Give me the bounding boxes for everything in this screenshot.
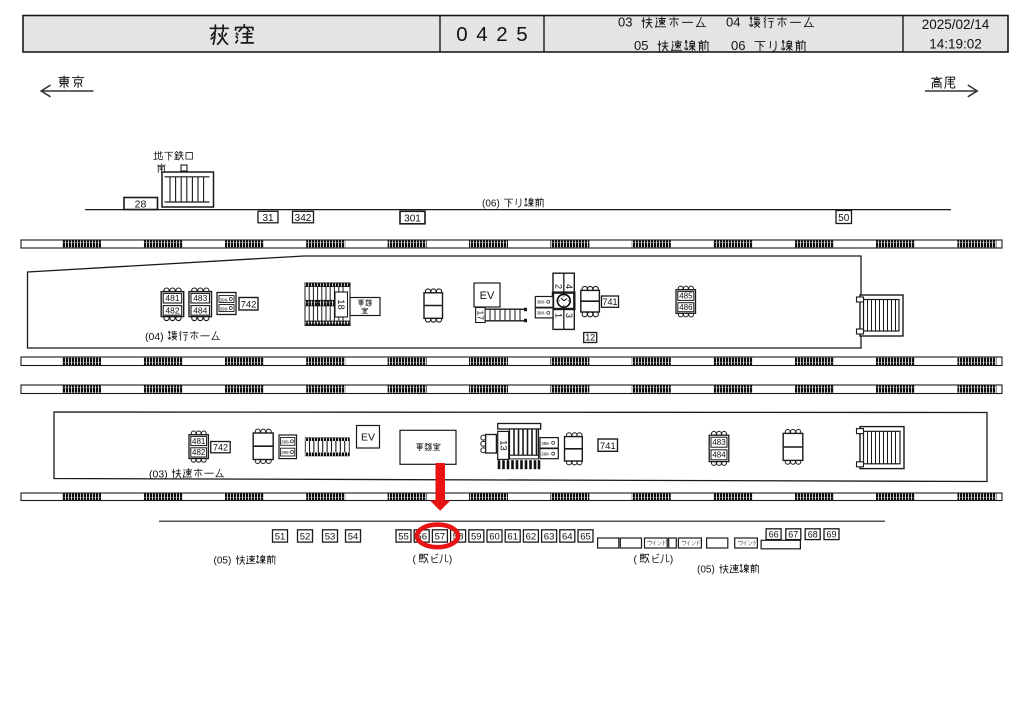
svg-text:66: 66 [769, 530, 779, 540]
svg-text:3: 3 [564, 313, 574, 318]
svg-text:2: 2 [553, 284, 563, 289]
svg-text:57: 57 [435, 532, 446, 543]
svg-text:18: 18 [335, 299, 346, 310]
svg-text:485: 485 [679, 292, 693, 301]
svg-text:04: 04 [726, 15, 740, 30]
svg-text:03: 03 [618, 15, 632, 30]
svg-text:398-: 398- [220, 297, 229, 302]
svg-text:398-: 398- [281, 450, 290, 455]
svg-text:50: 50 [838, 213, 850, 224]
svg-text:14:19:02: 14:19:02 [929, 37, 982, 52]
svg-text:342: 342 [295, 213, 312, 224]
svg-text:2: 2 [496, 23, 507, 46]
svg-text:68: 68 [808, 530, 818, 540]
svg-text:EV: EV [361, 432, 375, 444]
svg-text:742: 742 [213, 443, 228, 453]
svg-text:51: 51 [275, 532, 286, 543]
svg-text:398-: 398- [220, 306, 229, 311]
svg-text:31: 31 [262, 213, 274, 224]
svg-text:28: 28 [135, 199, 147, 211]
svg-text:4: 4 [476, 23, 487, 46]
svg-text:63: 63 [544, 532, 555, 543]
svg-text:2025/02/14: 2025/02/14 [922, 17, 990, 32]
svg-text:62: 62 [526, 532, 537, 543]
svg-text:0: 0 [456, 23, 467, 46]
svg-text:69: 69 [826, 530, 836, 540]
svg-text:(04): (04) [145, 331, 164, 343]
svg-text:486: 486 [679, 303, 693, 312]
svg-text:61: 61 [507, 532, 518, 543]
svg-text:742: 742 [241, 300, 257, 311]
svg-text:301: 301 [404, 213, 421, 224]
svg-text:741: 741 [602, 297, 617, 307]
svg-text:484: 484 [193, 305, 207, 315]
svg-text:482: 482 [165, 305, 179, 315]
svg-text:12: 12 [585, 333, 595, 343]
svg-text:53: 53 [325, 532, 336, 543]
svg-text:67: 67 [788, 530, 798, 540]
svg-text:): ) [449, 555, 452, 566]
svg-text:55: 55 [398, 532, 409, 543]
svg-text:481: 481 [192, 437, 206, 446]
svg-text:741: 741 [600, 441, 616, 452]
svg-text:5: 5 [516, 23, 527, 46]
svg-text:398-: 398- [281, 439, 290, 444]
svg-text:17: 17 [475, 310, 485, 320]
svg-text:1: 1 [553, 313, 563, 318]
svg-text:(05): (05) [697, 565, 715, 576]
svg-text:64: 64 [562, 532, 573, 543]
svg-text:): ) [670, 555, 673, 566]
svg-text:13: 13 [497, 440, 508, 451]
svg-text:60: 60 [489, 532, 500, 543]
svg-text:483: 483 [712, 438, 726, 447]
svg-text:484: 484 [712, 451, 726, 460]
svg-text:05: 05 [634, 38, 648, 53]
svg-text:(06): (06) [482, 199, 500, 210]
svg-text:398-: 398- [537, 311, 546, 316]
svg-text:54: 54 [348, 532, 359, 543]
svg-text:(03): (03) [149, 469, 168, 481]
svg-text:482: 482 [192, 448, 206, 457]
svg-text:52: 52 [300, 532, 311, 543]
svg-text:(05): (05) [214, 556, 232, 567]
svg-text:EV: EV [480, 290, 495, 302]
svg-text:398-: 398- [541, 441, 550, 446]
svg-text:398-: 398- [541, 452, 550, 457]
svg-text:65: 65 [580, 532, 591, 543]
svg-text:06: 06 [731, 38, 745, 53]
svg-text:398-: 398- [537, 300, 546, 305]
svg-text:481: 481 [165, 293, 179, 303]
svg-text:4: 4 [564, 284, 574, 289]
svg-text:59: 59 [471, 532, 482, 543]
svg-text:483: 483 [193, 293, 207, 303]
